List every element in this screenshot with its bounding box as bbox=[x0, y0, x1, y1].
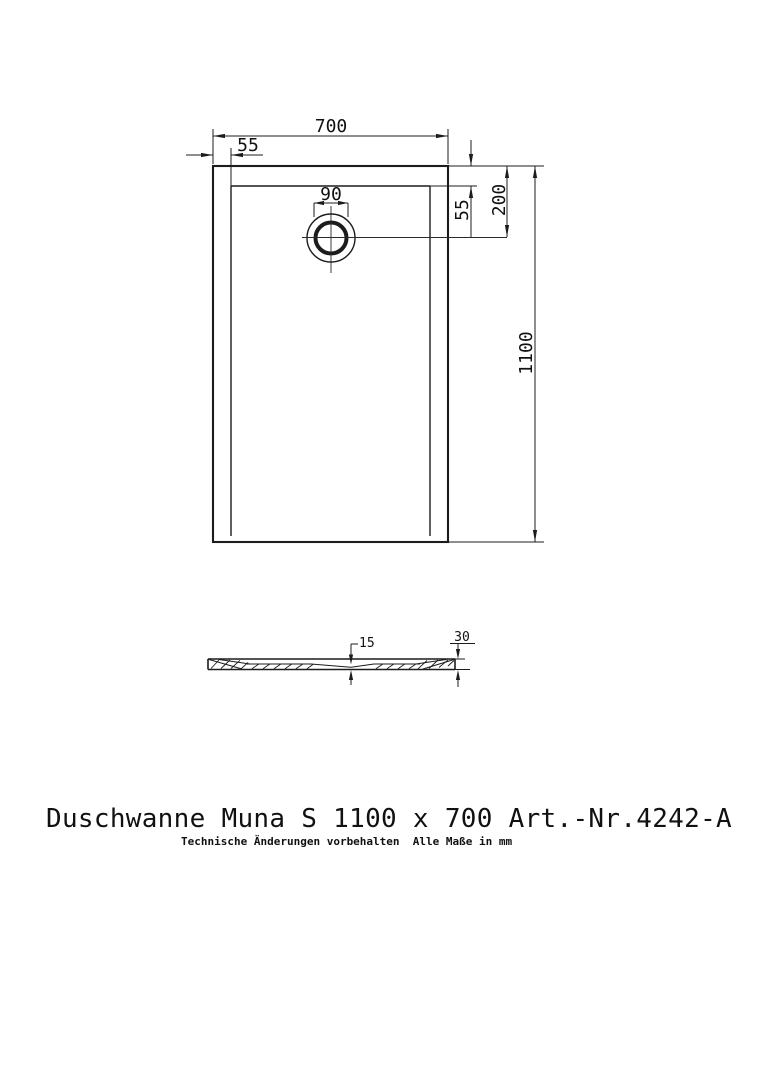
dim-drain-center-200: 200 bbox=[489, 166, 510, 237]
drawing-canvas: 700 55 90 55 bbox=[0, 0, 763, 1080]
dim-length-label: 1100 bbox=[516, 331, 537, 374]
drain-centerlines bbox=[302, 206, 507, 273]
dim-floor-thickness-label: 15 bbox=[359, 636, 375, 651]
dim-drain-diameter-label: 90 bbox=[320, 184, 342, 205]
dim-edge-height-label: 30 bbox=[454, 630, 470, 645]
dim-floor-thickness-15: 15 bbox=[349, 636, 375, 685]
drawing-title: Duschwanne Muna S 1100 x 700 Art.-Nr.424… bbox=[46, 804, 732, 834]
tray-inner-rim-outline bbox=[231, 186, 430, 536]
dim-drain-center-label: 200 bbox=[489, 184, 510, 217]
dim-length-1100: 1100 bbox=[448, 166, 544, 542]
drawing-subtitle: Technische Änderungen vorbehalten Alle M… bbox=[181, 835, 512, 848]
dim-rim-left-label: 55 bbox=[237, 135, 259, 156]
dim-width-label: 700 bbox=[315, 116, 348, 137]
technical-drawing-page: 700 55 90 55 bbox=[0, 0, 763, 1080]
dim-rim-left-55: 55 bbox=[186, 135, 263, 186]
dim-rim-top-label: 55 bbox=[452, 199, 473, 221]
section-view bbox=[208, 659, 455, 670]
plan-view bbox=[213, 166, 507, 542]
dim-rim-top-55: 55 bbox=[430, 140, 477, 237]
